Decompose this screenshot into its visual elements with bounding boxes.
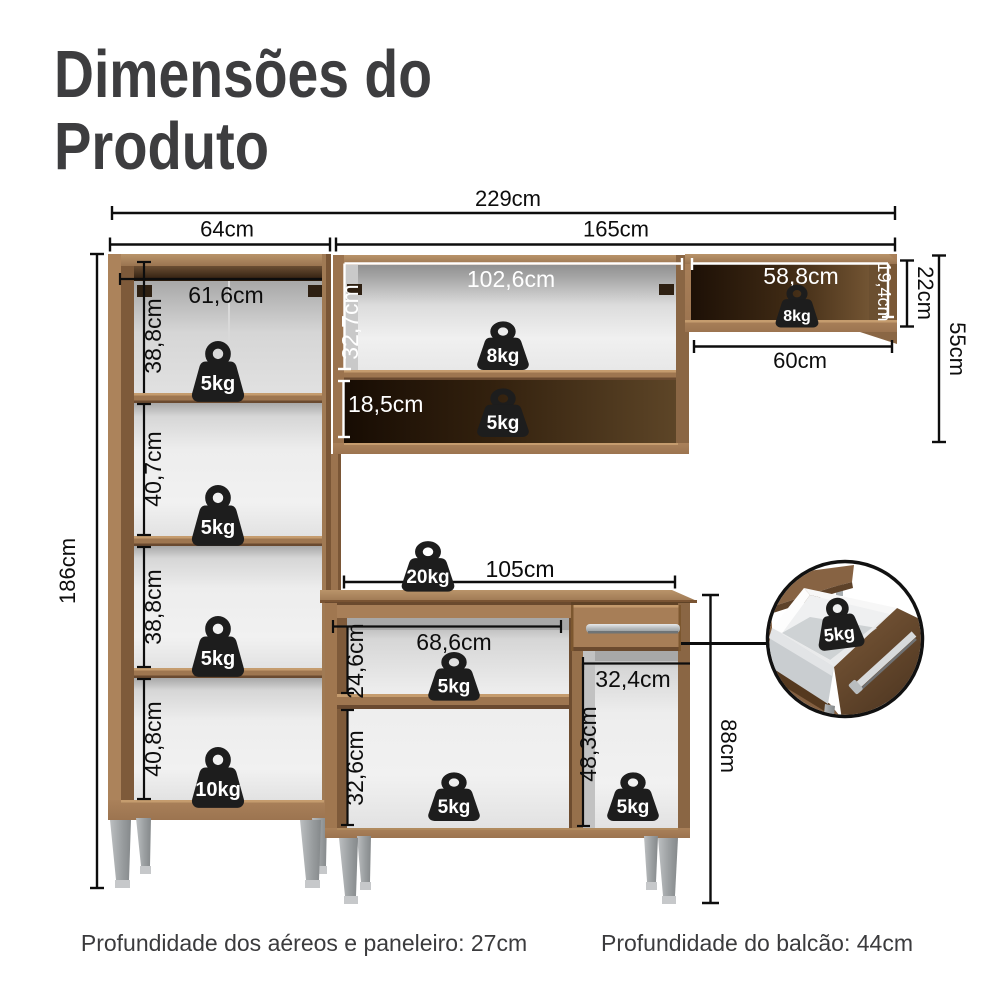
svg-text:165cm: 165cm: [583, 217, 649, 242]
svg-text:5kg: 5kg: [438, 797, 471, 818]
svg-text:Profundidade dos aéreos e pane: Profundidade dos aéreos e paneleiro: 27c…: [81, 930, 527, 956]
svg-text:8kg: 8kg: [783, 308, 811, 325]
svg-text:64cm: 64cm: [200, 217, 254, 242]
svg-text:18,5cm: 18,5cm: [348, 391, 423, 417]
svg-text:38,8cm: 38,8cm: [140, 569, 166, 644]
svg-text:48,3cm: 48,3cm: [575, 706, 601, 781]
svg-text:19,4cm: 19,4cm: [874, 262, 894, 321]
svg-text:5kg: 5kg: [617, 797, 650, 818]
svg-text:40,8cm: 40,8cm: [140, 701, 166, 776]
svg-text:186cm: 186cm: [55, 538, 80, 604]
svg-text:Produto: Produto: [54, 109, 269, 184]
svg-text:55cm: 55cm: [945, 322, 970, 376]
svg-text:61,6cm: 61,6cm: [188, 282, 263, 308]
svg-text:10kg: 10kg: [195, 779, 241, 801]
svg-text:5kg: 5kg: [438, 677, 471, 698]
svg-text:38,8cm: 38,8cm: [140, 298, 166, 373]
svg-text:8kg: 8kg: [487, 346, 520, 367]
svg-text:5kg: 5kg: [201, 517, 235, 539]
svg-text:58,8cm: 58,8cm: [763, 263, 838, 289]
svg-text:32,4cm: 32,4cm: [595, 666, 670, 692]
svg-text:5kg: 5kg: [201, 373, 235, 395]
svg-text:40,7cm: 40,7cm: [140, 431, 166, 506]
svg-text:Dimensões do: Dimensões do: [54, 37, 432, 112]
svg-text:102,6cm: 102,6cm: [467, 266, 555, 292]
svg-text:20kg: 20kg: [406, 567, 449, 588]
svg-text:Profundidade do balcão: 44cm: Profundidade do balcão: 44cm: [601, 930, 913, 956]
svg-text:105cm: 105cm: [485, 556, 554, 582]
svg-text:88cm: 88cm: [716, 719, 741, 773]
svg-text:5kg: 5kg: [487, 413, 520, 434]
svg-text:24,6cm: 24,6cm: [342, 623, 368, 698]
svg-text:5kg: 5kg: [201, 648, 235, 670]
svg-text:60cm: 60cm: [773, 348, 827, 373]
svg-text:68,6cm: 68,6cm: [416, 629, 491, 655]
svg-text:32,7cm: 32,7cm: [337, 284, 363, 359]
svg-text:22cm: 22cm: [913, 266, 938, 320]
svg-text:32,6cm: 32,6cm: [342, 730, 368, 805]
svg-text:5kg: 5kg: [823, 622, 856, 646]
svg-text:229cm: 229cm: [475, 186, 541, 211]
